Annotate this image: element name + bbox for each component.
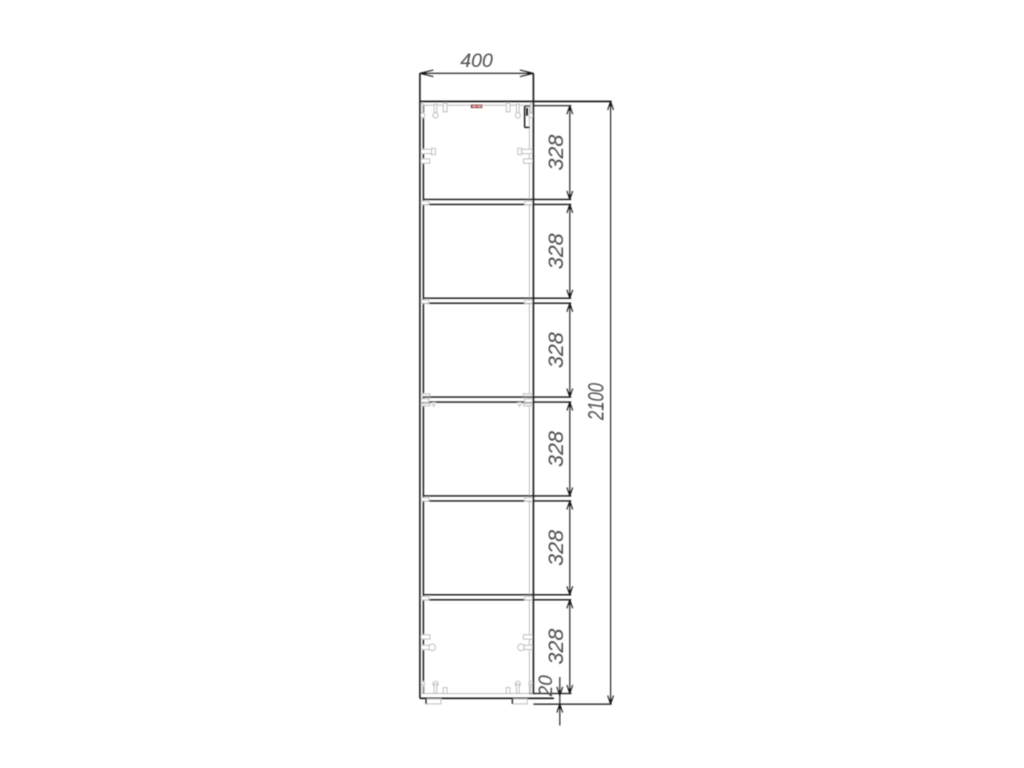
svg-text:400: 400 bbox=[460, 50, 493, 72]
svg-text:328: 328 bbox=[544, 530, 568, 566]
svg-text:328: 328 bbox=[544, 431, 568, 467]
svg-text:328: 328 bbox=[544, 233, 568, 269]
svg-text:328: 328 bbox=[544, 135, 568, 171]
svg-text:328: 328 bbox=[544, 332, 568, 368]
svg-text:2100: 2100 bbox=[584, 383, 609, 421]
svg-text:20: 20 bbox=[536, 675, 557, 698]
svg-text:328: 328 bbox=[544, 629, 568, 665]
